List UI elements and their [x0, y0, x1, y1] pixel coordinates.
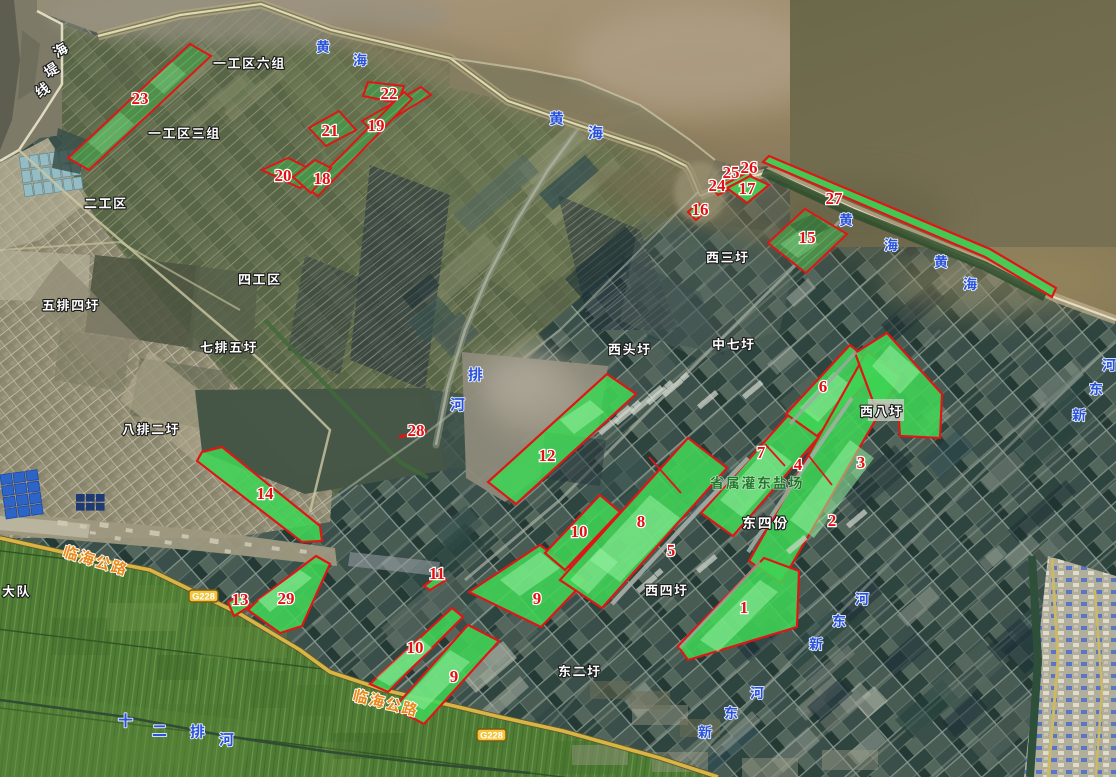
svg-text:6: 6 — [819, 377, 828, 396]
svg-text:13: 13 — [232, 590, 249, 609]
svg-text:11: 11 — [429, 564, 445, 583]
svg-text:21: 21 — [322, 121, 339, 140]
svg-text:16: 16 — [692, 200, 709, 219]
svg-text:22: 22 — [381, 84, 398, 103]
svg-text:18: 18 — [314, 169, 331, 188]
svg-text:4: 4 — [794, 455, 803, 474]
svg-text:9: 9 — [450, 667, 459, 686]
svg-text:G228: G228 — [192, 592, 215, 602]
svg-text:17: 17 — [739, 179, 757, 198]
svg-text:29: 29 — [278, 589, 295, 608]
svg-text:G228: G228 — [480, 731, 503, 741]
svg-text:10: 10 — [571, 522, 588, 541]
svg-text:28: 28 — [408, 421, 425, 440]
svg-text:26: 26 — [741, 158, 758, 177]
svg-text:3: 3 — [857, 453, 866, 472]
svg-text:25: 25 — [723, 163, 740, 182]
svg-text:23: 23 — [132, 89, 149, 108]
svg-text:8: 8 — [637, 512, 646, 531]
svg-text:5: 5 — [667, 541, 676, 560]
svg-text:9: 9 — [533, 589, 542, 608]
svg-text:15: 15 — [799, 228, 816, 247]
svg-text:20: 20 — [275, 166, 292, 185]
svg-text:2: 2 — [828, 511, 837, 530]
svg-text:27: 27 — [826, 189, 844, 208]
svg-text:19: 19 — [368, 116, 385, 135]
svg-text:10: 10 — [407, 638, 424, 657]
svg-text:7: 7 — [757, 443, 766, 462]
svg-text:12: 12 — [539, 446, 556, 465]
svg-text:14: 14 — [257, 484, 275, 503]
svg-text:1: 1 — [740, 598, 749, 617]
